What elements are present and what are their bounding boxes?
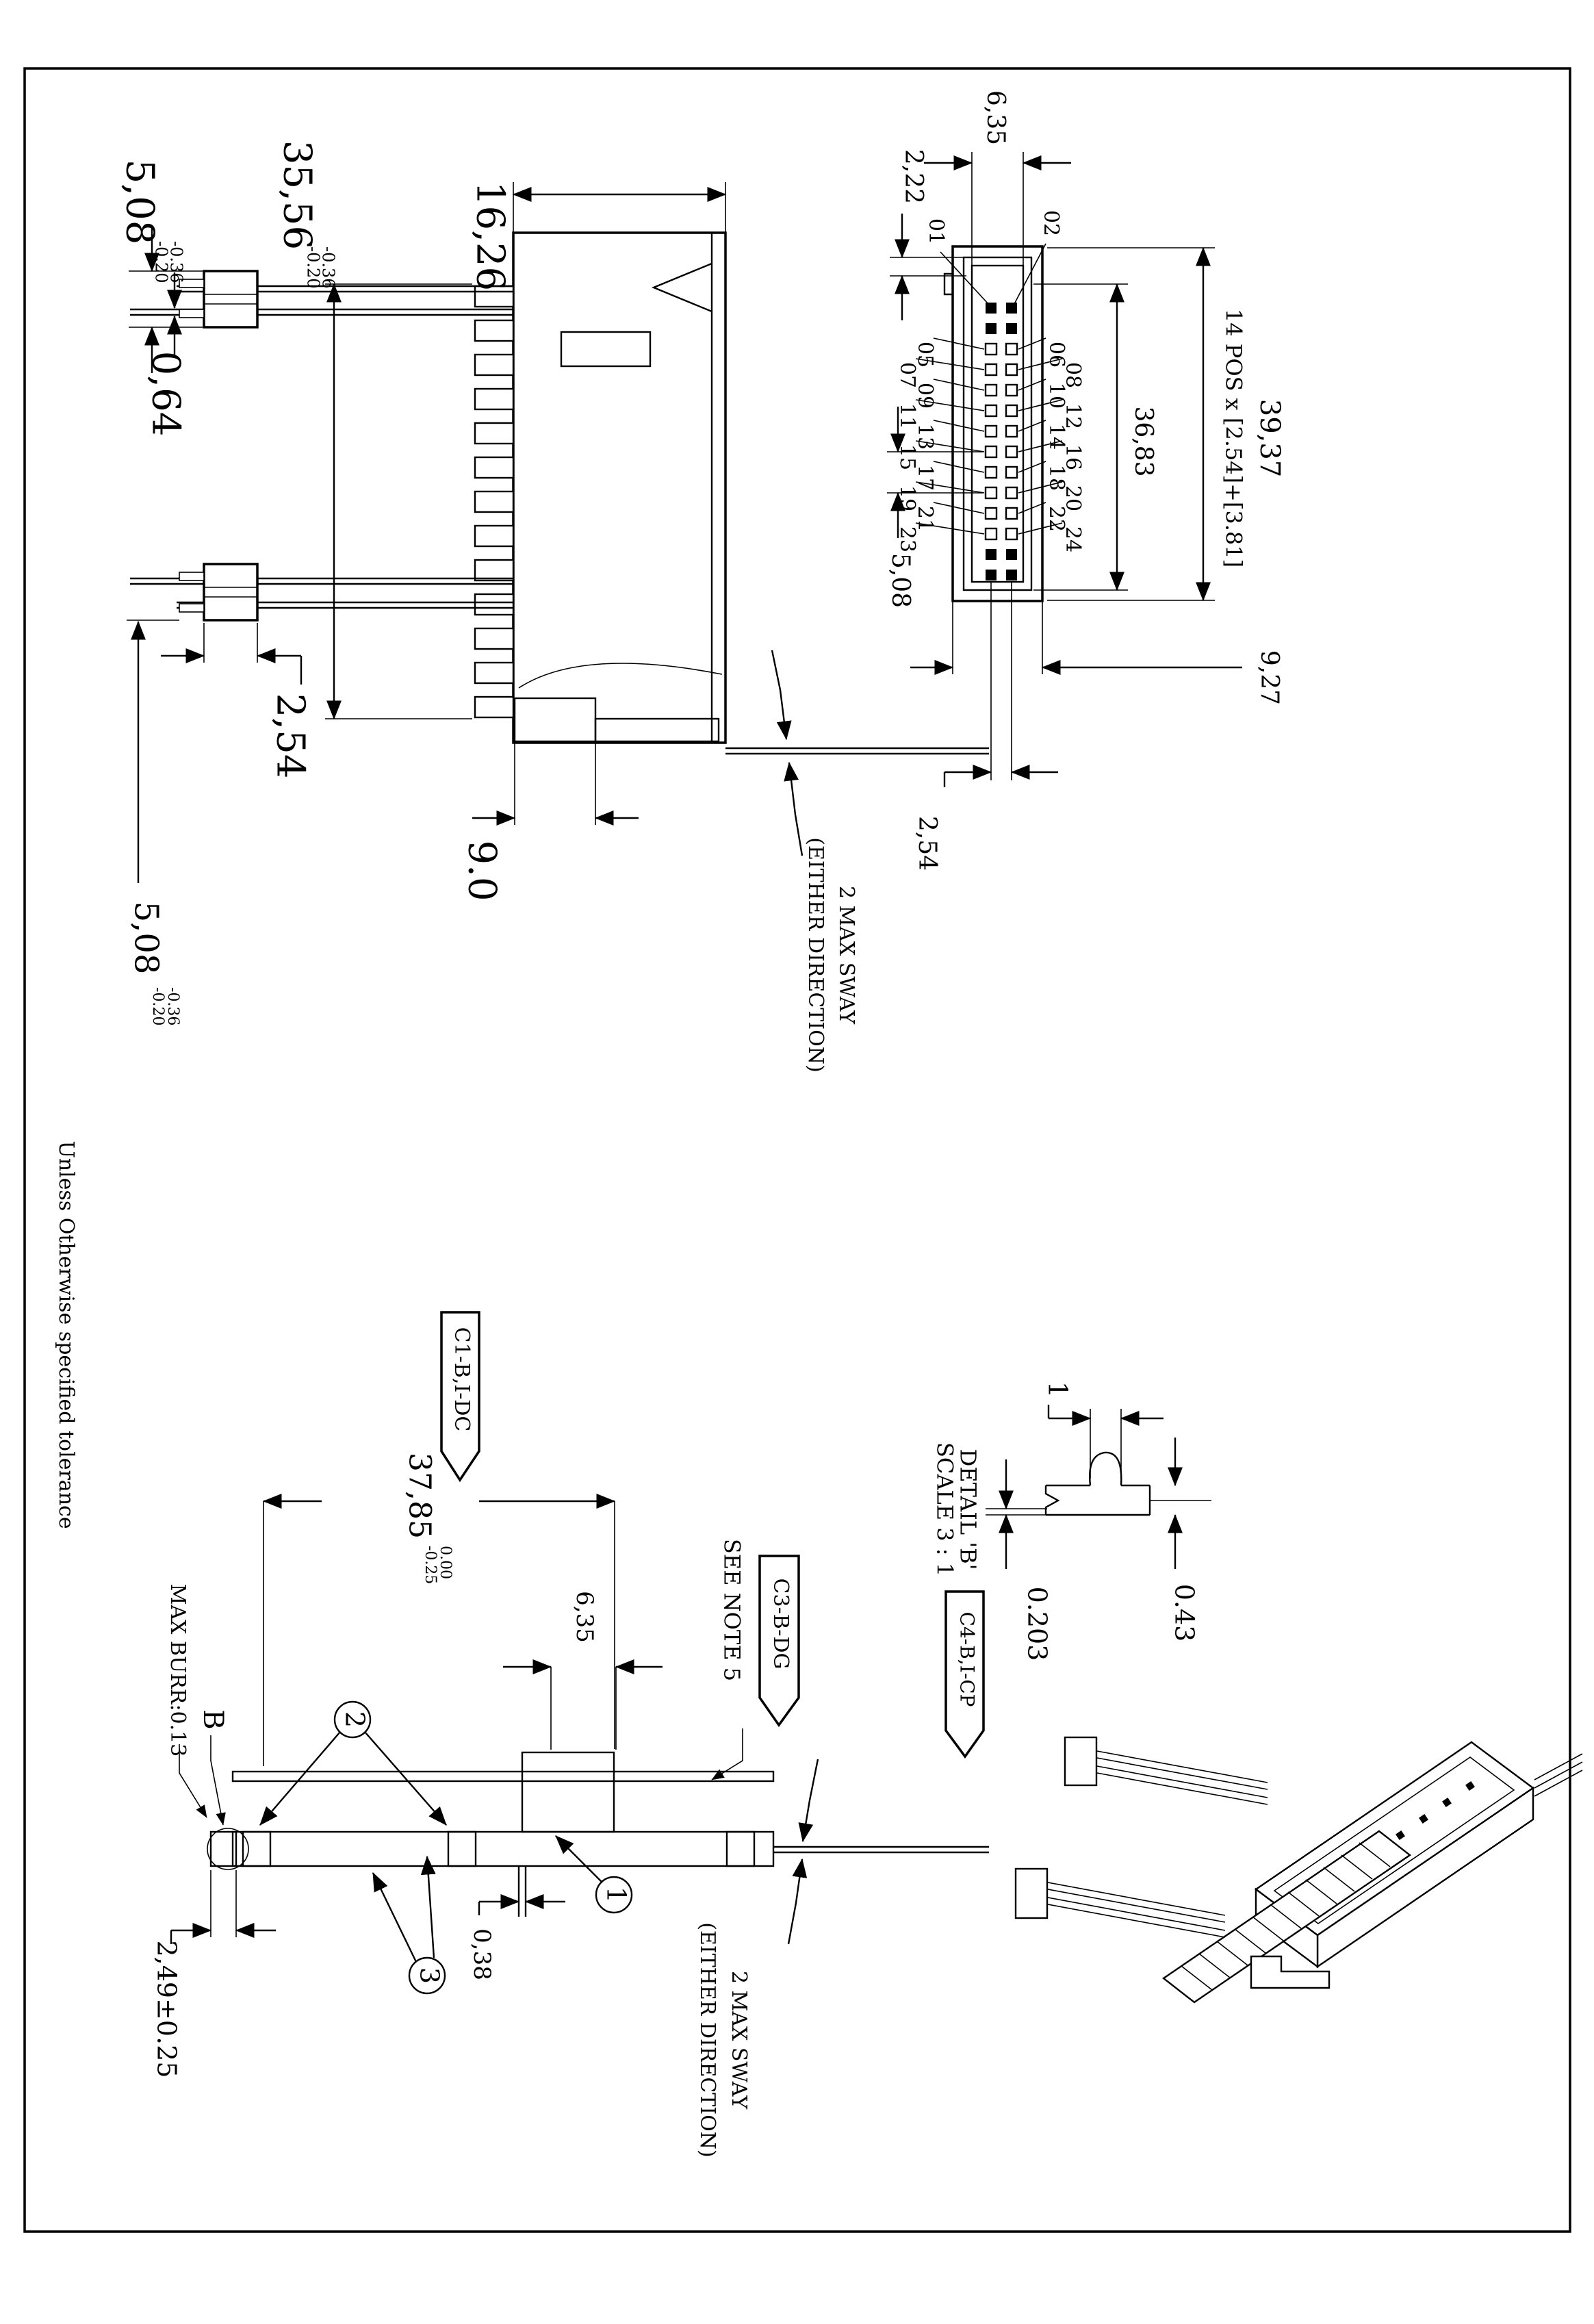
svg-text:14 POS x [2.54]+[3.81]: 14 POS x [2.54]+[3.81] bbox=[1221, 309, 1247, 567]
detail-title: DETAIL 'B' bbox=[955, 1449, 981, 1570]
svg-text:24: 24 bbox=[1061, 526, 1085, 552]
svg-text:-0.20: -0.20 bbox=[149, 987, 166, 1025]
key-slot bbox=[561, 332, 650, 366]
see-note: SEE NOTE 5 bbox=[712, 1539, 745, 1780]
svg-text:2,49±0.25: 2,49±0.25 bbox=[152, 1940, 182, 2078]
sway-note-line2: (EITHER DIRECTION) bbox=[804, 837, 827, 1072]
svg-text:16,26: 16,26 bbox=[468, 181, 513, 291]
dim-thickness: 0.43 bbox=[1170, 1438, 1200, 1642]
dim-plating: 0.203 bbox=[986, 1459, 1053, 1661]
balloon-2: 2 bbox=[260, 1702, 446, 1825]
end-tab bbox=[211, 1832, 236, 1866]
svg-text:23: 23 bbox=[895, 526, 919, 552]
dim-pin-thickness: 0,64 bbox=[144, 272, 188, 436]
pin-label: 01 bbox=[924, 218, 948, 244]
burr-note: MAX BURR:0.13 bbox=[166, 1584, 207, 1817]
iso-pin-bundle-upper bbox=[1065, 1737, 1268, 1804]
svg-text:C3-B-DG: C3-B-DG bbox=[769, 1579, 793, 1670]
pin-strip bbox=[233, 1832, 773, 1866]
svg-text:-0.20: -0.20 bbox=[152, 241, 171, 283]
pin-label: 02 bbox=[1039, 210, 1063, 236]
svg-text:5,08: 5,08 bbox=[886, 553, 914, 608]
svg-text:37,85: 37,85 bbox=[402, 1453, 437, 1539]
svg-text:9.0: 9.0 bbox=[460, 840, 504, 901]
flag-c4: C4-B,I-CP bbox=[946, 1592, 984, 1757]
dim-tab: 0,38 bbox=[468, 1902, 565, 1980]
iso-pin-bundle-lower bbox=[1016, 1869, 1225, 1937]
body-strip bbox=[233, 1772, 773, 1781]
dim-boss-mount: 6,35 bbox=[503, 1591, 663, 1750]
isometric-view bbox=[1016, 1737, 1582, 2002]
dim-pitch-front: 2,54 bbox=[913, 582, 1058, 871]
flag-c1: C1-B,I-DC bbox=[441, 1312, 479, 1480]
detail-pin bbox=[1046, 1453, 1211, 1515]
dim-detail-len: 1 bbox=[1043, 1381, 1164, 1479]
svg-text:C4-B,I-CP: C4-B,I-CP bbox=[956, 1612, 979, 1707]
balloon-3: 3 bbox=[373, 1856, 445, 1993]
svg-text:C1-B,I-DC: C1-B,I-DC bbox=[450, 1327, 474, 1432]
svg-text:39,37: 39,37 bbox=[1254, 399, 1285, 478]
svg-text:2,22: 2,22 bbox=[899, 149, 927, 204]
svg-text:36,83: 36,83 bbox=[1129, 406, 1157, 476]
iso-pin-stubs-right bbox=[1534, 1754, 1582, 1796]
sway-note-line2: (EITHER DIRECTION) bbox=[695, 1922, 719, 2157]
svg-text:6,35: 6,35 bbox=[571, 1591, 598, 1643]
sway-note-line1: 2 MAX SWAY bbox=[727, 1971, 751, 2110]
dim-tail: 2,49±0.25 bbox=[152, 1870, 277, 2078]
svg-text:5,08: 5,08 bbox=[118, 159, 162, 245]
svg-text:1: 1 bbox=[602, 1887, 632, 1903]
tolerance-note: Unless Otherwise specified tolerance bbox=[54, 1140, 78, 1529]
detail-scale: SCALE 3 : 1 bbox=[932, 1442, 958, 1576]
pin-comb bbox=[475, 286, 513, 717]
side-section-view: 2 MAX SWAY (EITHER DIRECTION) 5,08 -0.36… bbox=[118, 140, 990, 1073]
dim-pin-bottom: 5,08 -0.36 -0.20 bbox=[127, 620, 181, 1025]
svg-text:35,56: 35,56 bbox=[275, 140, 320, 250]
sway-note-line1: 2 MAX SWAY bbox=[834, 886, 858, 1025]
svg-text:SEE NOTE 5: SEE NOTE 5 bbox=[719, 1539, 745, 1681]
svg-text:0,38: 0,38 bbox=[468, 1928, 496, 1980]
drawing-canvas: Unless Otherwise specified tolerance bbox=[0, 0, 1594, 2324]
housing-body bbox=[513, 233, 725, 743]
dim-length: 35,56 -0.36 -0.20 bbox=[275, 140, 473, 719]
detail-b-view: 1 0.203 0.43 DETAIL 'B' SCALE 3 : 1 C4-B… bbox=[932, 1381, 1212, 1757]
detail-marker-b: B bbox=[197, 1709, 229, 1825]
balloon-1: 1 bbox=[556, 1836, 632, 1913]
dim-boss-side: 9.0 bbox=[460, 743, 639, 902]
mount-side-view: C1-B,I-DC 37,85 0.00 -0.25 MAX BURR:0.13… bbox=[152, 1312, 990, 2158]
dim-pin-top: 5,08 -0.36 -0.20 bbox=[118, 159, 203, 373]
svg-text:5,08: 5,08 bbox=[127, 902, 166, 975]
drawing-sheet: Unless Otherwise specified tolerance bbox=[0, 0, 1594, 2324]
flag-c3: C3-B-DG bbox=[760, 1556, 799, 1725]
svg-text:2: 2 bbox=[340, 1711, 370, 1728]
svg-text:0.203: 0.203 bbox=[1023, 1587, 1053, 1661]
dim-width: 9,27 bbox=[910, 601, 1283, 705]
dim-pitch-side: 2,54 bbox=[161, 623, 313, 778]
svg-text:3: 3 bbox=[415, 1967, 445, 1984]
svg-text:-0.20: -0.20 bbox=[304, 246, 323, 289]
svg-text:1: 1 bbox=[1043, 1381, 1073, 1398]
svg-text:-0.25: -0.25 bbox=[422, 1546, 439, 1584]
bottom-pin-assembly bbox=[130, 564, 513, 620]
svg-text:2,54: 2,54 bbox=[268, 693, 313, 779]
sway-pin bbox=[725, 650, 989, 856]
svg-text:2,54: 2,54 bbox=[913, 816, 941, 871]
dim-span: 37,85 0.00 -0.25 bbox=[263, 1453, 615, 1766]
svg-text:6,35: 6,35 bbox=[981, 90, 1010, 145]
svg-text:0.43: 0.43 bbox=[1170, 1584, 1200, 1642]
svg-text:9,27: 9,27 bbox=[1255, 650, 1283, 705]
sway-pin-mount bbox=[773, 1759, 989, 1944]
boss-hatch bbox=[522, 1752, 614, 1832]
svg-text:0,64: 0,64 bbox=[144, 351, 188, 437]
svg-text:MAX BURR:0.13: MAX BURR:0.13 bbox=[166, 1584, 190, 1757]
svg-text:B: B bbox=[197, 1709, 229, 1729]
